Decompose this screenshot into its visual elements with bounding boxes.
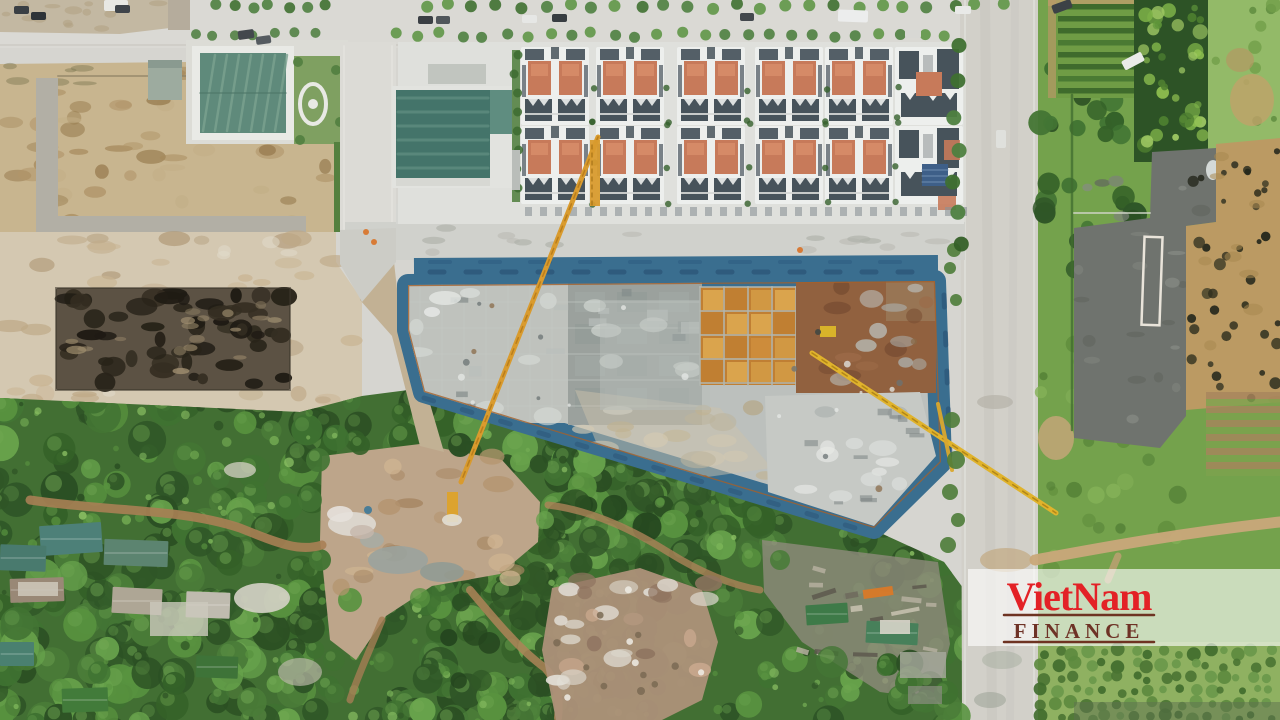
- svg-text:FINANCE: FINANCE: [1014, 619, 1145, 643]
- svg-text:VietNam: VietNam: [1007, 574, 1152, 619]
